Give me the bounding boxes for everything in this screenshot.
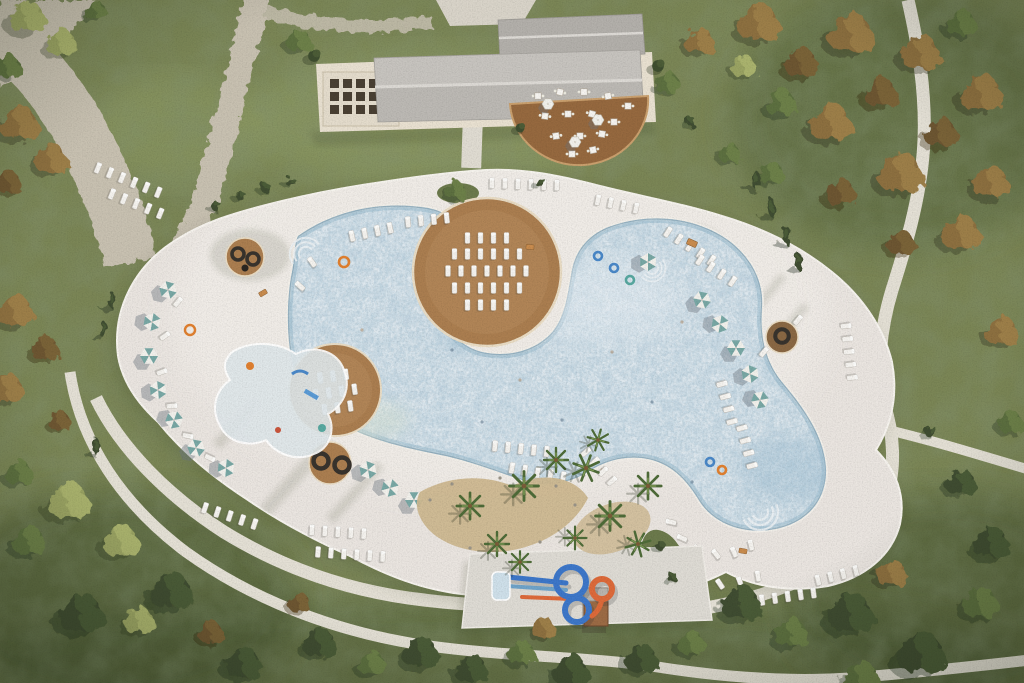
aerial-rendering: Aerial rendering of a resort lagoon pool… xyxy=(0,0,1024,683)
vignette xyxy=(0,0,1024,683)
site-plan-svg: Aerial rendering of a resort lagoon pool… xyxy=(0,0,1024,683)
